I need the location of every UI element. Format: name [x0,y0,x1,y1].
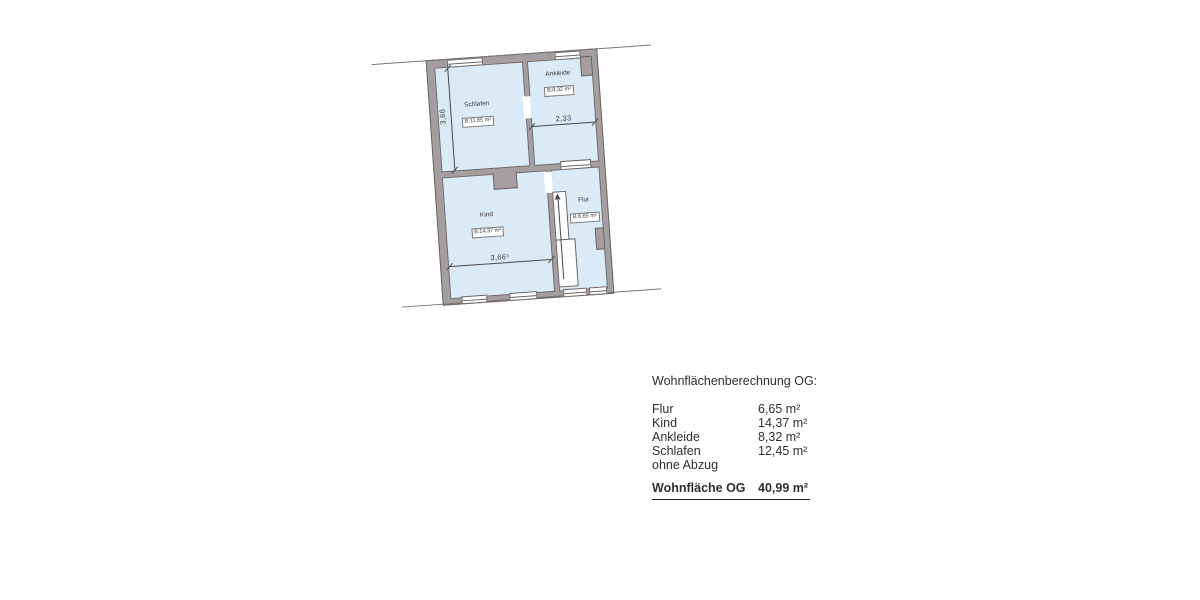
row-value: 14,37 m² [758,416,807,430]
floor-plan-drawing: 3,66 2,33 3,66⁵ Schlafen B:11,65 m² Ankl… [426,48,615,305]
room-area-box: B:8,32 m² [544,85,574,97]
row-label: Schlafen [652,444,758,458]
window-bottom-2 [509,291,537,301]
chimney-block [493,171,518,190]
calculation-total-row: Wohnfläche OG 40,99 m² [652,481,810,500]
total-value: 40,99 m² [758,481,808,496]
row-value: 12,45 m² [758,444,807,458]
label-room-schlafen: Schlafen B:11,65 m² [445,99,511,129]
window-bottom-3 [563,288,587,298]
scanned-document-page: 3,66 2,33 3,66⁵ Schlafen B:11,65 m² Ankl… [0,0,1200,600]
row-label: Flur [652,402,758,416]
calculation-row: Ankleide 8,32 m² [652,430,812,444]
row-label: Ankleide [652,430,758,444]
row-value: 6,65 m² [758,402,800,416]
room-area-box: B:11,65 m² [461,115,494,127]
calculation-title: Wohnflächenberechnung OG: [652,374,822,389]
area-calculation-block: Wohnflächenberechnung OG: Flur 6,65 m² K… [652,374,822,500]
room-area-box: B:6,65 m² [570,211,600,223]
calculation-row: Flur 6,65 m² [652,402,812,416]
row-label: ohne Abzug [652,458,758,472]
door-schlafen-ankleide [522,96,532,119]
calculation-row: Schlafen 12,45 m² [652,444,812,458]
row-label: Kind [652,416,758,430]
stair-lower-run [555,238,578,287]
window-bottom-1 [461,295,487,305]
calculation-row: Kind 14,37 m² [652,416,812,430]
window-bottom-4 [589,286,608,295]
row-value: 8,32 m² [758,430,800,444]
door-kind-flur [544,172,553,194]
label-room-kind: Kind B:14,37 m² [454,209,520,239]
wall-notch-flur [595,227,606,250]
label-room-flur: Flur B:6,65 m² [552,194,618,224]
total-label: Wohnfläche OG [652,481,758,496]
calculation-row: ohne Abzug [652,458,812,472]
room-area-box: B:14,37 m² [471,226,505,238]
label-room-ankleide: Ankleide B:8,32 m² [526,68,592,98]
